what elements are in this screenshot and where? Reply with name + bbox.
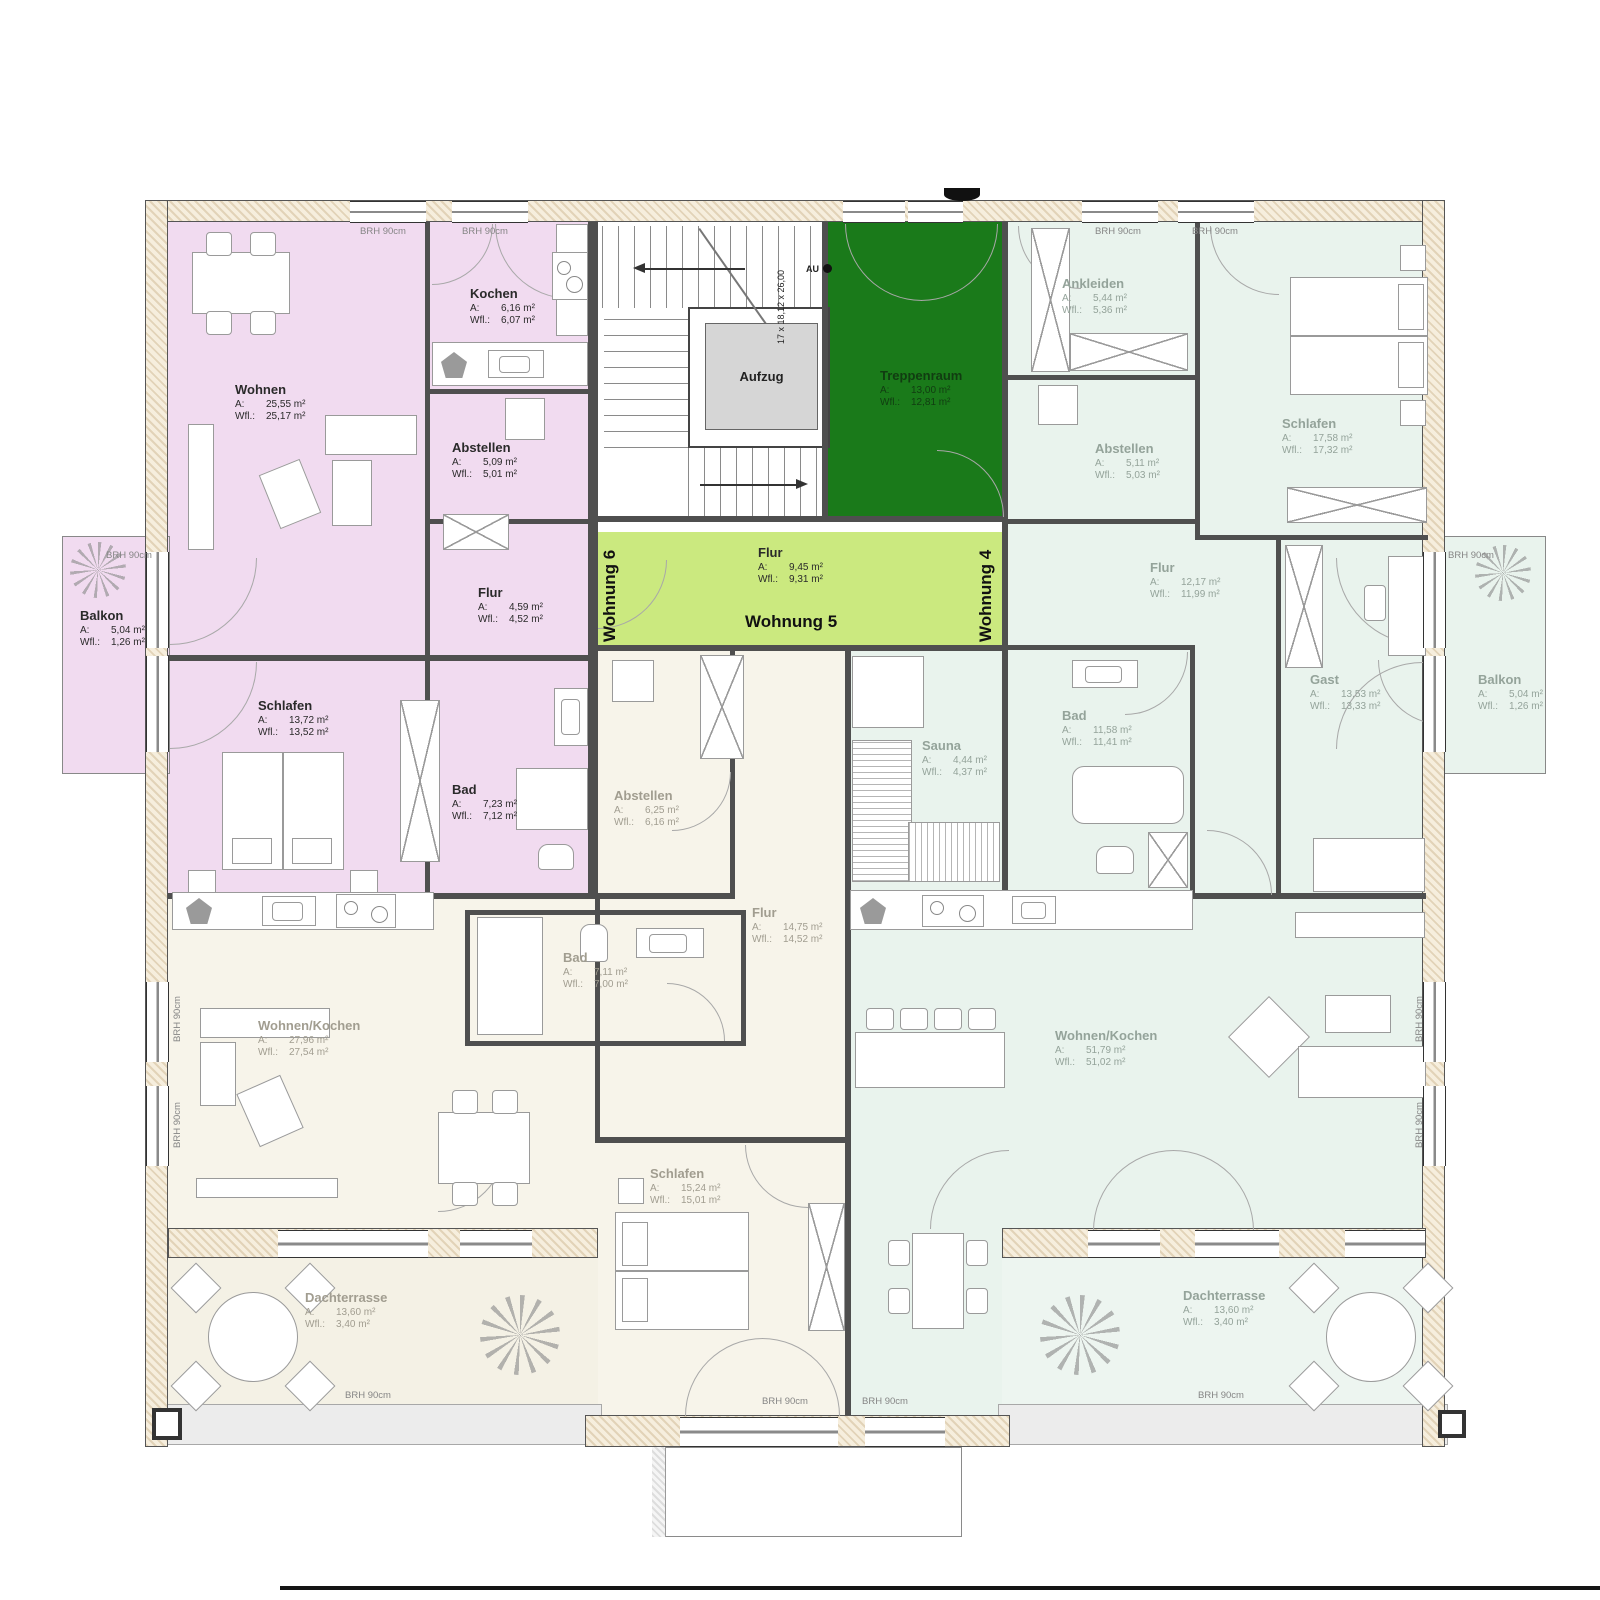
wardrobe xyxy=(1287,487,1427,523)
brh-label: BRH 90cm xyxy=(172,962,183,1042)
sauna-bench xyxy=(908,822,1000,882)
window xyxy=(1423,982,1446,1062)
balcony-door-left xyxy=(146,656,169,752)
brh-label: BRH 90cm xyxy=(172,1068,183,1148)
window xyxy=(350,201,426,223)
floor-plan: 17 x 18,12 x 26,00 AU Aufzug xyxy=(0,0,1600,1600)
wardrobe xyxy=(443,514,509,550)
chair xyxy=(966,1288,988,1314)
room-label-bad-w6: Bad A:7,23 m²Wfl.:7,12 m² xyxy=(452,782,517,824)
sauna-heater xyxy=(852,656,924,728)
balcony-door-left xyxy=(146,552,169,648)
room-label-sauna-w4: Sauna A:4,44 m²Wfl.:4,37 m² xyxy=(922,738,987,780)
nightstand xyxy=(1400,400,1426,426)
window xyxy=(1423,1086,1446,1166)
sofa xyxy=(1298,1046,1426,1098)
bed-divider xyxy=(282,753,284,869)
shower xyxy=(477,917,543,1035)
stair-exit-dot xyxy=(823,264,832,273)
kitchen-sink xyxy=(1012,896,1056,924)
wall xyxy=(592,893,735,899)
pillow xyxy=(1398,284,1424,330)
plant xyxy=(480,1295,560,1375)
room-label-dachterrasse-left: Dachterrasse A:13,60 m²Wfl.:3,40 m² xyxy=(305,1290,387,1332)
room-label-abstellen-w6: Abstellen A:5,09 m²Wfl.:5,01 m² xyxy=(452,440,517,482)
window xyxy=(1178,201,1254,223)
room-label-wohnen-w6: Wohnen A:25,55 m²Wfl.:25,17 m² xyxy=(235,382,305,424)
room-label-treppenraum: Treppenraum A:13,00 m²Wfl.:12,81 m² xyxy=(880,368,962,410)
brh-label: BRH 90cm xyxy=(1414,1068,1425,1148)
pillow xyxy=(292,838,332,864)
kitchen-sink xyxy=(488,350,544,378)
corner-marker-right xyxy=(1438,1410,1466,1438)
window xyxy=(1088,1230,1160,1258)
terrace-table xyxy=(1326,1292,1416,1382)
room-label-gast-w4: Gast A:13,53 m²Wfl.:13,33 m² xyxy=(1310,672,1380,714)
balcony-door-right xyxy=(1423,552,1446,648)
room-label-kochen-w6: Kochen A:6,16 m²Wfl.:6,07 m² xyxy=(470,286,535,328)
stool xyxy=(900,1008,928,1030)
chair xyxy=(452,1182,478,1206)
nightstand xyxy=(618,1178,644,1204)
wall xyxy=(425,222,430,662)
stool xyxy=(968,1008,996,1030)
wardrobe xyxy=(1070,333,1188,371)
brh-label: BRH 90cm xyxy=(762,1396,808,1407)
chair xyxy=(1364,585,1386,621)
corner-marker-left xyxy=(152,1408,182,1440)
bed-divider xyxy=(616,1270,748,1272)
room-label-schlafen-w6: Schlafen A:13,72 m²Wfl.:13,52 m² xyxy=(258,698,328,740)
eave-panel-left xyxy=(150,1404,602,1445)
window xyxy=(460,1230,532,1258)
room-label-ankleiden-w4: Ankleiden A:5,44 m²Wfl.:5,36 m² xyxy=(1062,276,1127,318)
stair-flight-left xyxy=(604,308,688,448)
chair xyxy=(492,1090,518,1114)
elevator-label: Aufzug xyxy=(739,369,783,384)
wardrobe xyxy=(808,1203,845,1331)
tv-bench xyxy=(196,1178,338,1198)
wardrobe xyxy=(1285,545,1323,668)
wall xyxy=(1190,648,1195,898)
shelf xyxy=(188,424,214,550)
sauna-bench xyxy=(852,740,912,882)
wardrobe xyxy=(700,655,744,759)
brh-label: BRH 90cm xyxy=(345,1390,391,1401)
chair xyxy=(250,311,276,335)
window xyxy=(1345,1230,1425,1258)
bathtub xyxy=(1072,766,1184,824)
chair xyxy=(250,232,276,256)
washer xyxy=(612,660,654,702)
eave-panel-right xyxy=(998,1404,1448,1445)
room-label-bad-w5: Bad A:7,11 m²Wfl.:7,00 m² xyxy=(563,950,628,992)
cooktop xyxy=(922,895,984,927)
bath-sink xyxy=(1072,660,1138,688)
kitchen-island xyxy=(855,1032,1005,1088)
terrace-door xyxy=(1195,1230,1279,1258)
brh-label: BRH 90cm xyxy=(360,226,406,237)
chair xyxy=(888,1288,910,1314)
desk xyxy=(1388,556,1426,656)
balcony-door-right xyxy=(1423,656,1446,752)
kitchen-sink xyxy=(262,896,316,926)
wall xyxy=(1005,645,1195,650)
pillow xyxy=(622,1222,648,1266)
cabinet xyxy=(1148,832,1188,888)
wall xyxy=(588,222,598,898)
stair-arrow-head xyxy=(633,263,645,273)
dining-table xyxy=(438,1112,530,1184)
guest-bed xyxy=(1313,838,1425,892)
sideboard xyxy=(1295,912,1425,938)
page-rule xyxy=(280,1586,1600,1590)
window xyxy=(843,201,905,223)
terrace-door xyxy=(278,1230,428,1258)
bath-sink xyxy=(636,928,704,958)
cabinet xyxy=(1038,385,1078,425)
room-label-abstellen-w5: Abstellen A:6,25 m²Wfl.:6,16 m² xyxy=(614,788,679,830)
brh-label: BRH 90cm xyxy=(462,226,508,237)
terrace-door xyxy=(680,1417,838,1447)
room-label-schlafen-w5: Schlafen A:15,24 m²Wfl.:15,01 m² xyxy=(650,1166,720,1208)
brh-label: BRH 90cm xyxy=(1414,962,1425,1042)
room-label-schlafen-w4: Schlafen A:17,58 m²Wfl.:17,32 m² xyxy=(1282,416,1352,458)
sofa xyxy=(200,1042,236,1106)
sofa xyxy=(325,415,417,455)
wall xyxy=(425,389,592,394)
lower-floor-hatch xyxy=(652,1447,666,1537)
stair-dimension-text: 17 x 18,12 x 26,00 xyxy=(776,232,786,344)
brh-label: BRH 90cm xyxy=(106,550,152,561)
nightstand xyxy=(1400,245,1426,271)
brh-label: BRH 90cm xyxy=(1198,1390,1244,1401)
window xyxy=(146,1086,169,1166)
room-label-balkon-right: Balkon A:5,04 m²Wfl.:1,26 m² xyxy=(1478,672,1543,714)
wall xyxy=(592,645,1008,651)
stair-arrow-head xyxy=(796,479,808,489)
wall xyxy=(1002,222,1008,898)
side-table xyxy=(1325,995,1391,1033)
dining-table xyxy=(192,252,290,314)
room-label-flur-w5: Flur A:14,75 m²Wfl.:14,52 m² xyxy=(752,905,822,947)
wall xyxy=(1005,375,1198,380)
brh-label: BRH 90cm xyxy=(1448,550,1494,561)
unit-label-wohnung5: Wohnung 5 xyxy=(745,612,837,632)
elevator: Aufzug xyxy=(705,323,818,430)
wall xyxy=(1195,535,1428,540)
room-label-flur-w4: Flur A:12,17 m²Wfl.:11,99 m² xyxy=(1150,560,1220,602)
room-label-bad-w4: Bad A:11,58 m²Wfl.:11,41 m² xyxy=(1062,708,1132,750)
wall xyxy=(1276,540,1281,898)
stair-arrow-line xyxy=(700,484,796,486)
room-label-flur-corridor: Flur A:9,45 m²Wfl.:9,31 m² xyxy=(758,545,823,587)
window xyxy=(865,1417,945,1447)
chair xyxy=(888,1240,910,1266)
unit-label-wohnung4: Wohnung 4 xyxy=(976,538,996,642)
lower-floor-outline xyxy=(652,1447,962,1537)
washer xyxy=(505,398,545,440)
stair-exit-label: AU xyxy=(806,264,819,274)
pillow xyxy=(232,838,272,864)
shower xyxy=(516,768,588,830)
toilet xyxy=(1096,846,1134,874)
chair xyxy=(206,232,232,256)
stair-arrow-line xyxy=(645,268,745,270)
brh-label: BRH 90cm xyxy=(862,1396,908,1407)
toilet xyxy=(538,844,574,870)
window xyxy=(908,201,963,223)
wall xyxy=(595,1137,848,1143)
wall xyxy=(845,645,851,1415)
sofa xyxy=(332,460,372,526)
chair xyxy=(206,311,232,335)
terrace-table xyxy=(208,1292,298,1382)
cooktop xyxy=(336,894,396,928)
north-marker xyxy=(944,188,980,201)
outer-wall-left xyxy=(145,200,168,1447)
window xyxy=(452,201,528,223)
chair xyxy=(452,1090,478,1114)
room-label-balkon-left: Balkon A:5,04 m²Wfl.:1,26 m² xyxy=(80,608,145,650)
window xyxy=(1082,201,1158,223)
room-label-dachterrasse-right: Dachterrasse A:13,60 m²Wfl.:3,40 m² xyxy=(1183,1288,1265,1330)
chair xyxy=(966,1240,988,1266)
room-label-abstellen-w4: Abstellen A:5,11 m²Wfl.:5,03 m² xyxy=(1095,441,1160,483)
wall xyxy=(1005,519,1198,524)
wall xyxy=(168,655,592,661)
chair xyxy=(492,1182,518,1206)
brh-label: BRH 90cm xyxy=(1192,226,1238,237)
bath-sink xyxy=(554,688,588,746)
wardrobe xyxy=(400,700,440,862)
bed-divider xyxy=(1291,335,1427,337)
window xyxy=(146,982,169,1062)
room-label-flur-w6: Flur A:4,59 m²Wfl.:4,52 m² xyxy=(478,585,543,627)
room-label-wohnen-kochen-w5: Wohnen/Kochen A:27,96 m²Wfl.:27,54 m² xyxy=(258,1018,360,1060)
plant xyxy=(1040,1295,1120,1375)
stool xyxy=(866,1008,894,1030)
brh-label: BRH 90cm xyxy=(1095,226,1141,237)
cooktop xyxy=(552,252,588,300)
room-label-wohnen-kochen-w4: Wohnen/Kochen A:51,79 m²Wfl.:51,02 m² xyxy=(1055,1028,1157,1070)
dining-table xyxy=(912,1233,964,1329)
unit-label-wohnung6: Wohnung 6 xyxy=(600,538,620,642)
pillow xyxy=(1398,342,1424,388)
stool xyxy=(934,1008,962,1030)
pillow xyxy=(622,1278,648,1322)
wall xyxy=(1195,222,1200,540)
